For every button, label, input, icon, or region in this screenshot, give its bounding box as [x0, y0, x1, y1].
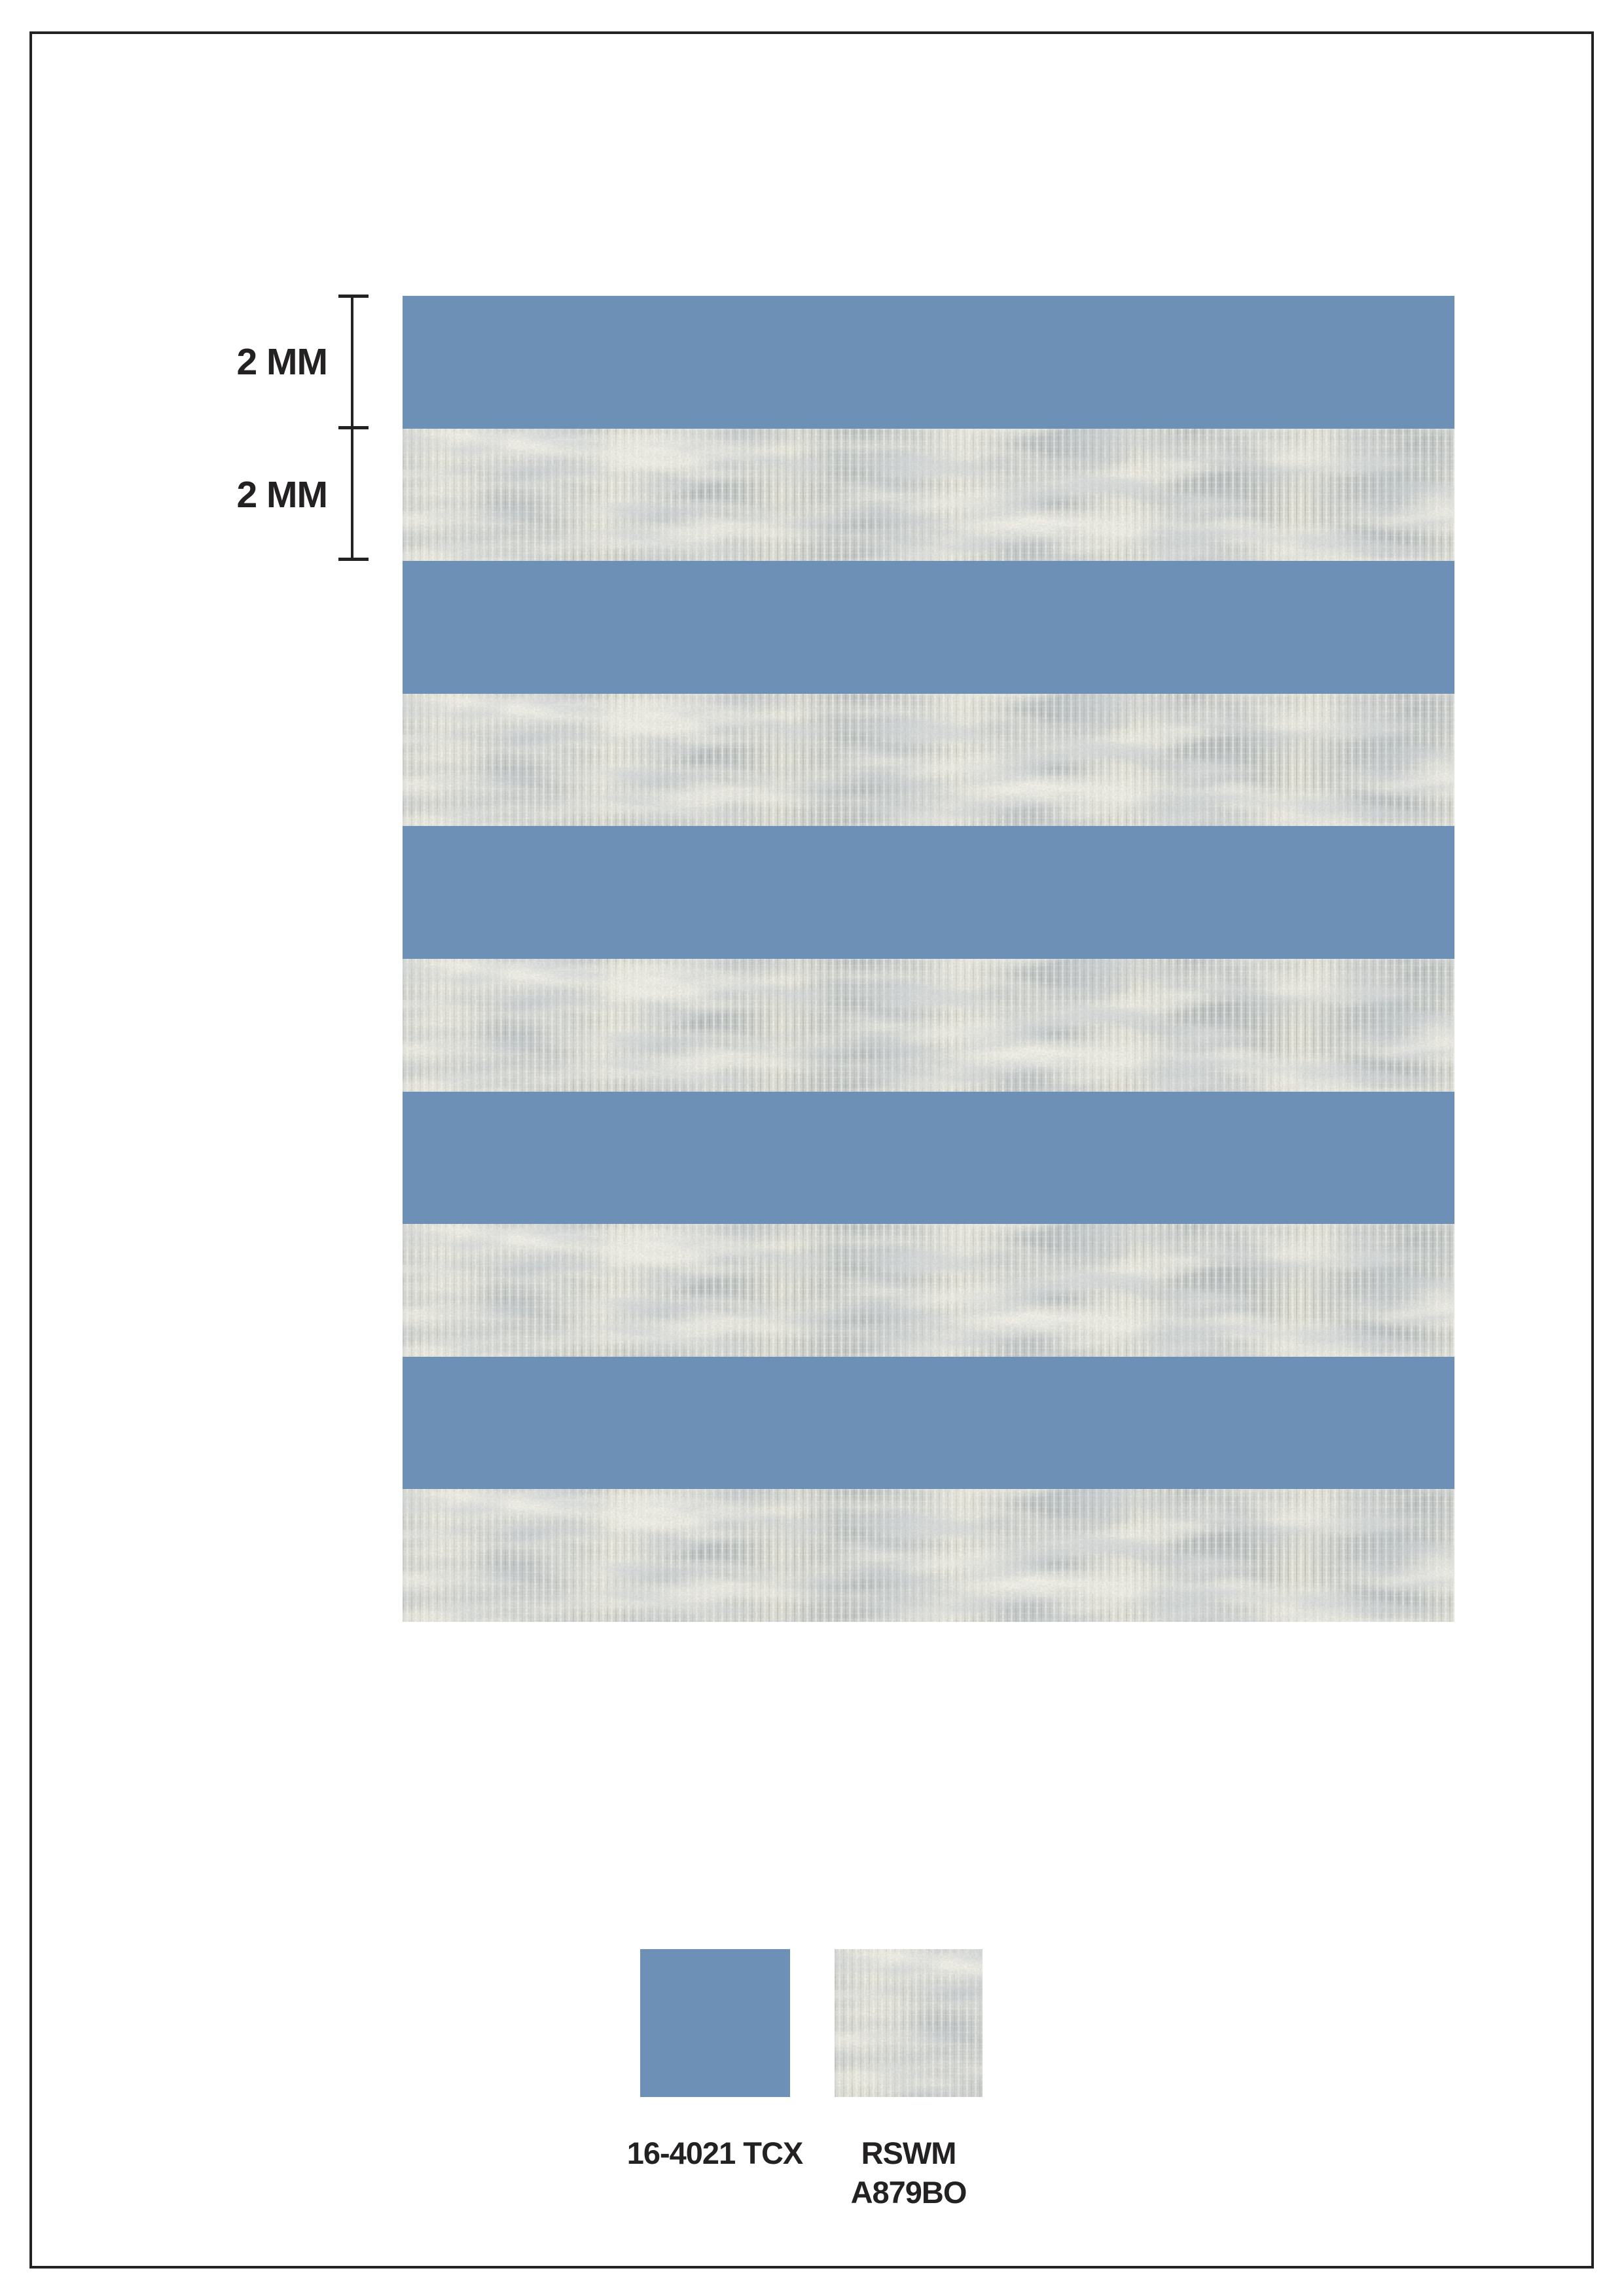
stripe-heather [403, 1224, 1454, 1357]
stripe-blue [403, 1357, 1454, 1490]
stripe-blue [403, 826, 1454, 959]
legend-label-blue: 16-4021 TCX [610, 2134, 820, 2173]
bracket-tick-top [338, 295, 369, 298]
legend-label-blue-line: 16-4021 TCX [610, 2134, 820, 2173]
stripe-blue [403, 1092, 1454, 1225]
stripe-blue [403, 561, 1454, 694]
stripe-height-label-2: 2 MM [157, 476, 327, 514]
legend-swatch-heather [835, 1949, 983, 2097]
legend-label-heather: RSWM A879BO [804, 2134, 1013, 2212]
stripe-heather [403, 1489, 1454, 1622]
stripe-heather [403, 959, 1454, 1092]
heather-noise-texture [403, 1489, 1454, 1622]
legend-label-heather-line2: A879BO [804, 2173, 1013, 2212]
bracket-tick-middle [338, 426, 369, 429]
stripe-height-label-1: 2 MM [157, 344, 327, 381]
heather-noise-texture [403, 1224, 1454, 1357]
stripe-blue [403, 296, 1454, 429]
legend-swatch-blue [640, 1949, 790, 2097]
spec-sheet-page: 2 MM 2 MM 16-4021 TCX [0, 0, 1624, 2296]
stripe-pattern [403, 296, 1454, 1622]
heather-noise-texture [403, 959, 1454, 1092]
legend-label-heather-line1: RSWM [804, 2134, 1013, 2173]
stripe-heather [403, 694, 1454, 827]
heather-noise-texture [835, 1949, 983, 2097]
heather-noise-texture [403, 694, 1454, 827]
stripe-heather [403, 429, 1454, 562]
bracket-tick-bottom [338, 558, 369, 561]
heather-noise-texture [403, 429, 1454, 562]
